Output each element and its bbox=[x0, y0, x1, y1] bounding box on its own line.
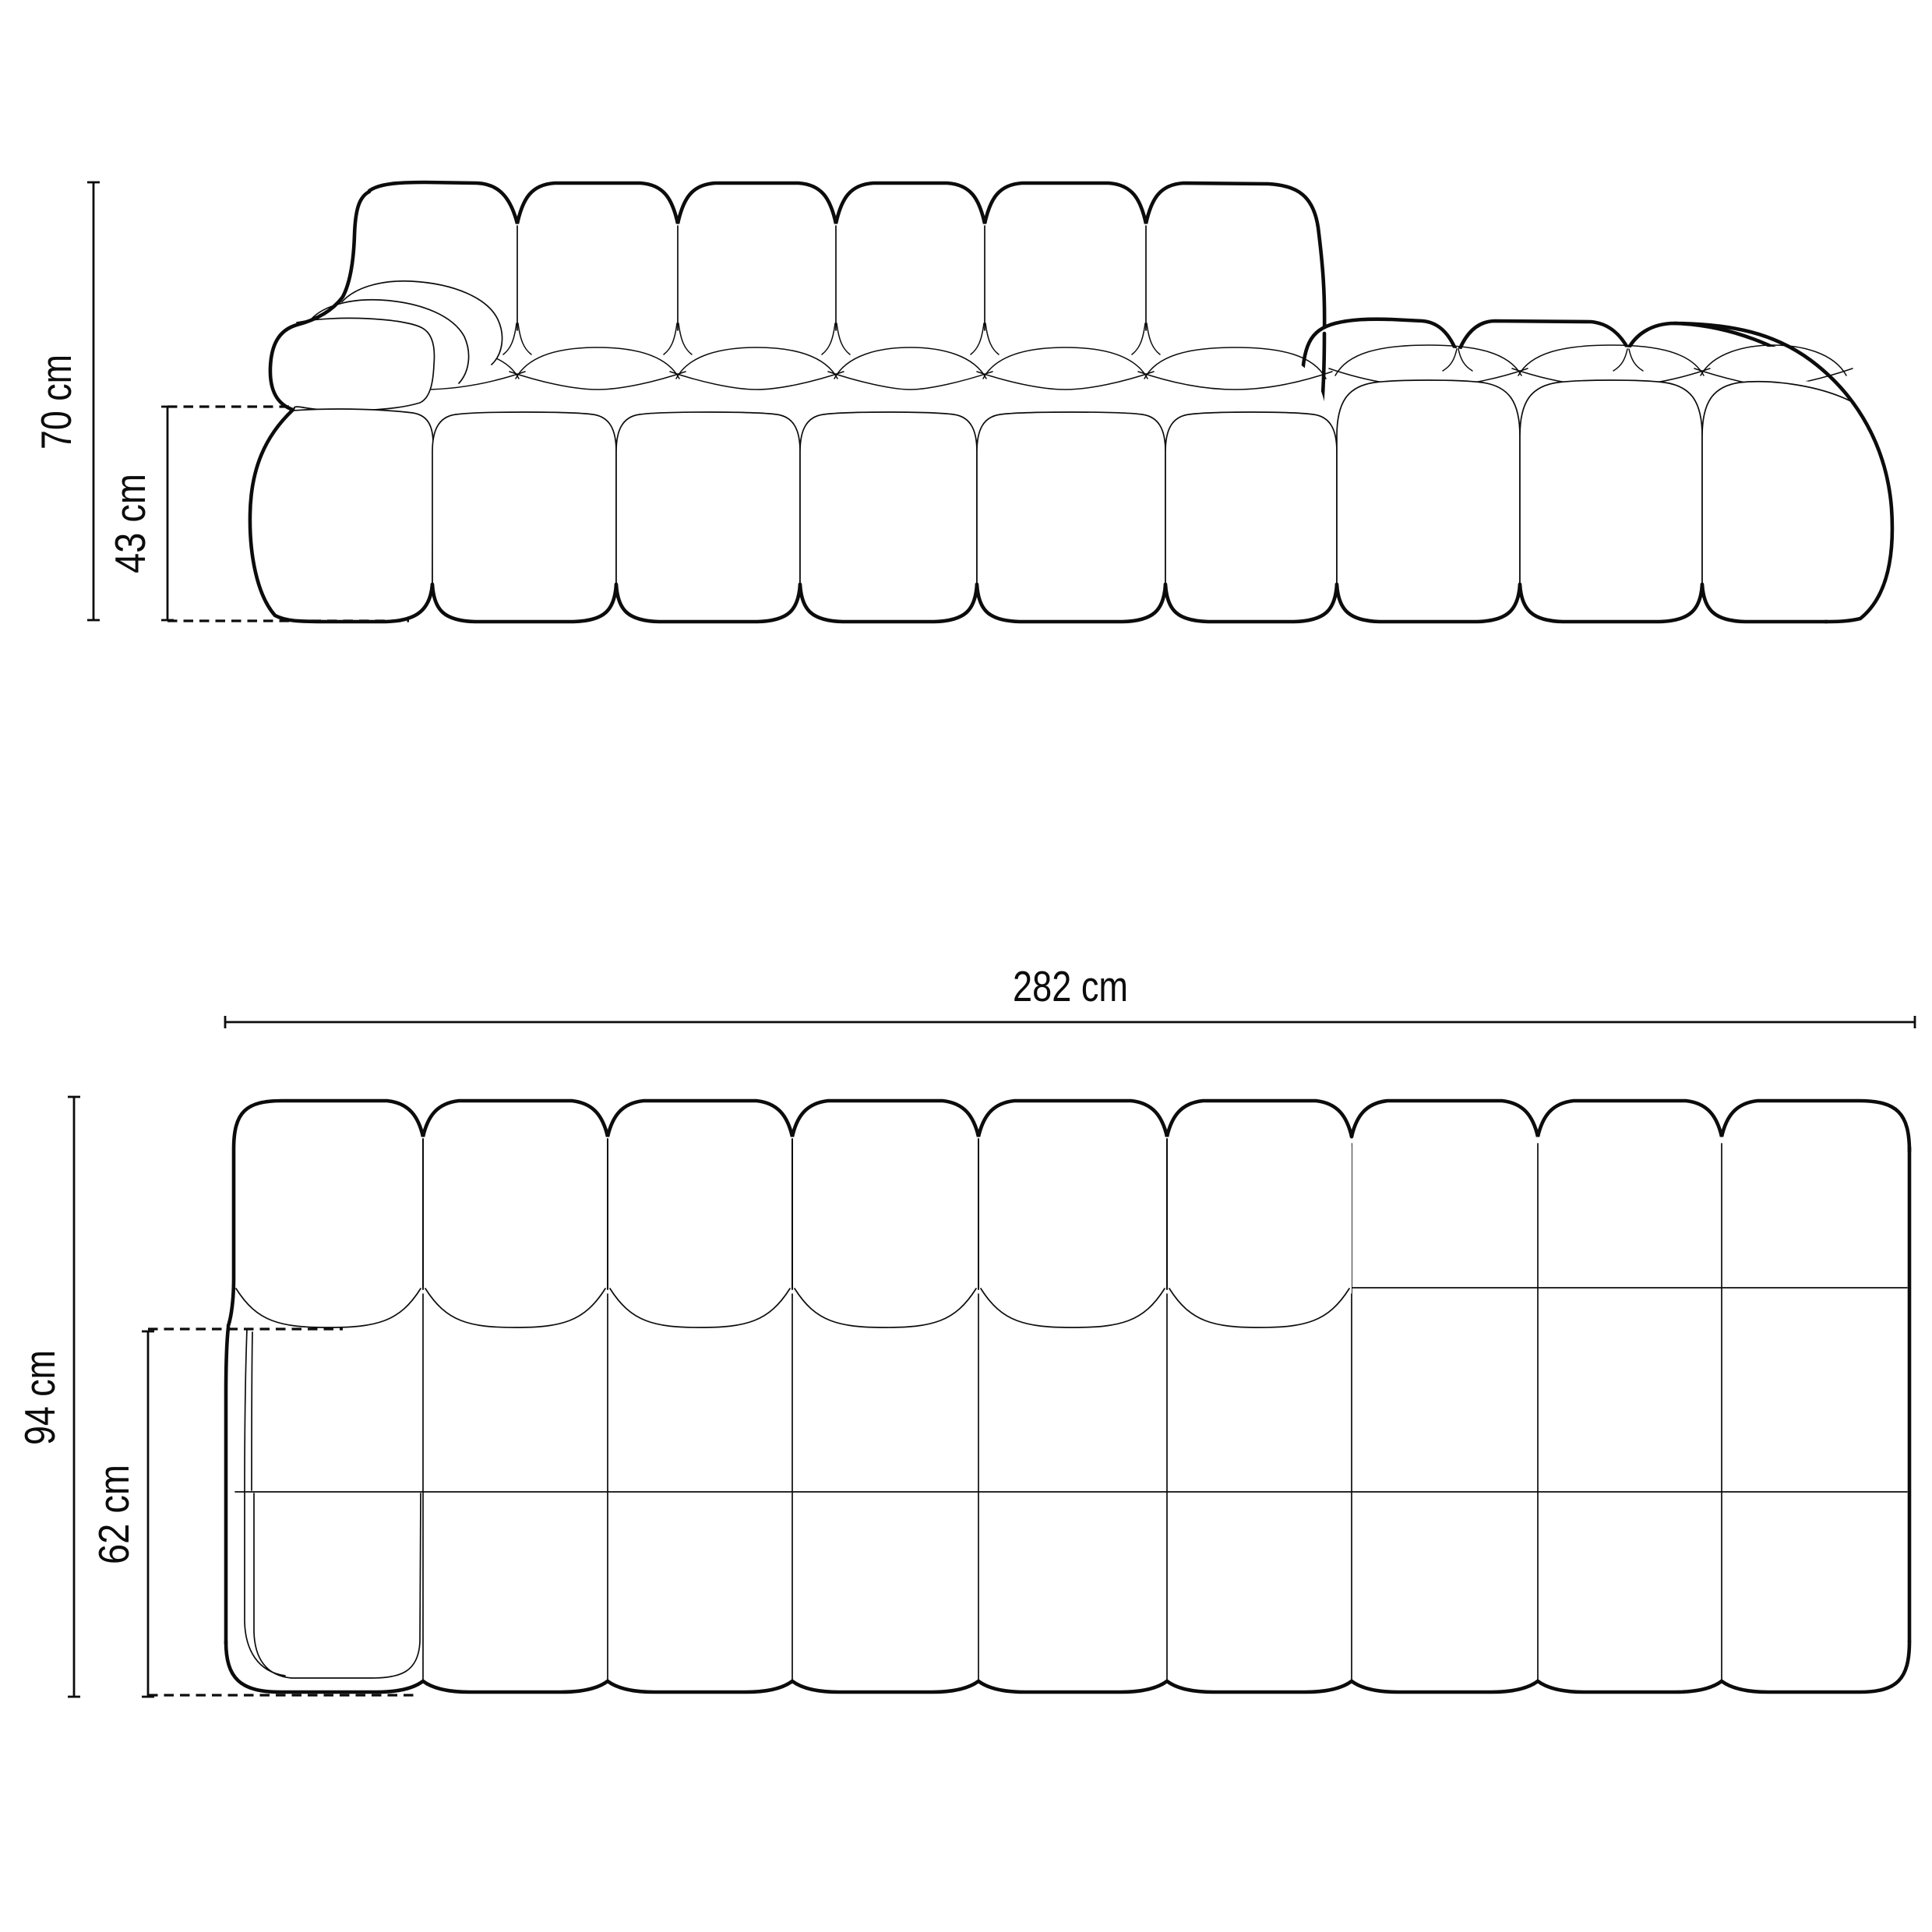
svg-text:62 cm: 62 cm bbox=[90, 1465, 138, 1564]
svg-text:94 cm: 94 cm bbox=[16, 1350, 64, 1445]
svg-text:282 cm: 282 cm bbox=[1013, 962, 1128, 1010]
svg-text:43 cm: 43 cm bbox=[106, 474, 154, 573]
svg-text:70 cm: 70 cm bbox=[32, 354, 80, 450]
